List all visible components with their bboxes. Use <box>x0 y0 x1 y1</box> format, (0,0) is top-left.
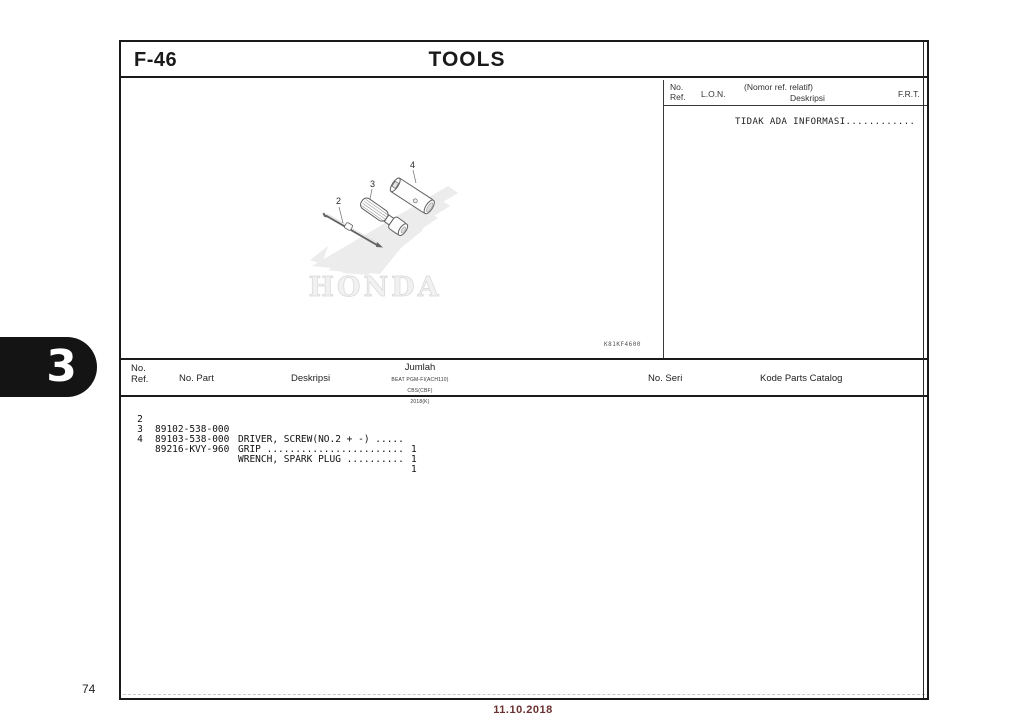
cell-ref: 4 <box>133 435 147 445</box>
callout-4: 4 <box>410 160 415 170</box>
leader-line-3 <box>370 189 372 199</box>
cell-desc: WRENCH, SPARK PLUG .......... <box>238 455 404 465</box>
col-kode-parts-catalog: Kode Parts Catalog <box>760 373 842 384</box>
col-deskripsi: Deskripsi <box>291 373 330 384</box>
section-code: F-46 <box>134 49 177 72</box>
diagram-area: HONDA <box>121 80 663 358</box>
honda-watermark-text: HONDA <box>308 272 441 303</box>
catalog-page: F-46 TOOLS HONDA <box>119 40 929 700</box>
page-header: F-46 TOOLS <box>121 42 927 78</box>
col-no-part: No. Part <box>179 373 214 384</box>
leader-line-2 <box>339 207 343 223</box>
chapter-tab: 3 <box>0 337 97 397</box>
tools-illustration: HONDA <box>298 156 470 308</box>
info-col-nomor-ref: (Nomor ref. relatif) <box>744 82 813 92</box>
table-row: 3 89103-538-000 GRIP ...................… <box>121 415 927 425</box>
chapter-number: 3 <box>46 345 77 389</box>
page-title: TOOLS <box>429 48 506 72</box>
cell-qty: 1 <box>411 465 417 475</box>
col-jumlah: Jumlah BEAT PGM-FI(ACH110) CBS(CBF) 2018… <box>370 362 470 406</box>
honda-wing-watermark <box>310 186 458 275</box>
footer-date: 11.10.2018 <box>468 704 578 716</box>
jumlah-model-line1: BEAT PGM-FI(ACH110) <box>391 377 448 383</box>
footer-dashed-rule <box>123 694 925 695</box>
info-col-frt: F.R.T. <box>898 89 920 99</box>
leader-line-4 <box>413 170 416 183</box>
parts-table-header: No.Ref. No. Part Deskripsi Jumlah BEAT P… <box>121 360 927 397</box>
cell-part: 89216-KVY-960 <box>155 445 229 455</box>
col-no-ref: No.Ref. <box>131 363 148 385</box>
page-number: 74 <box>82 682 95 696</box>
table-row: 4 89216-KVY-960 WRENCH, SPARK PLUG .....… <box>121 425 927 435</box>
info-panel-header: No.Ref. L.O.N. (Nomor ref. relatif) Desk… <box>664 80 927 106</box>
info-panel: No.Ref. L.O.N. (Nomor ref. relatif) Desk… <box>663 80 927 358</box>
table-row: 2 89102-538-000 DRIVER, SCREW(NO.2 + -) … <box>121 405 927 415</box>
info-col-lon: L.O.N. <box>701 89 726 99</box>
callout-2: 2 <box>336 196 341 206</box>
no-information-message: TIDAK ADA INFORMASI............ <box>735 117 915 127</box>
image-code: K81KF4600 <box>604 341 641 348</box>
info-col-no-ref: No.Ref. <box>670 82 686 102</box>
info-col-deskripsi: Deskripsi <box>790 93 825 103</box>
callout-3: 3 <box>370 179 375 189</box>
jumlah-model-line2: CBS(CBF) <box>407 388 432 394</box>
parts-table: No.Ref. No. Part Deskripsi Jumlah BEAT P… <box>121 358 927 698</box>
col-no-seri: No. Seri <box>648 373 682 384</box>
parts-rows: 2 89102-538-000 DRIVER, SCREW(NO.2 + -) … <box>121 405 927 435</box>
